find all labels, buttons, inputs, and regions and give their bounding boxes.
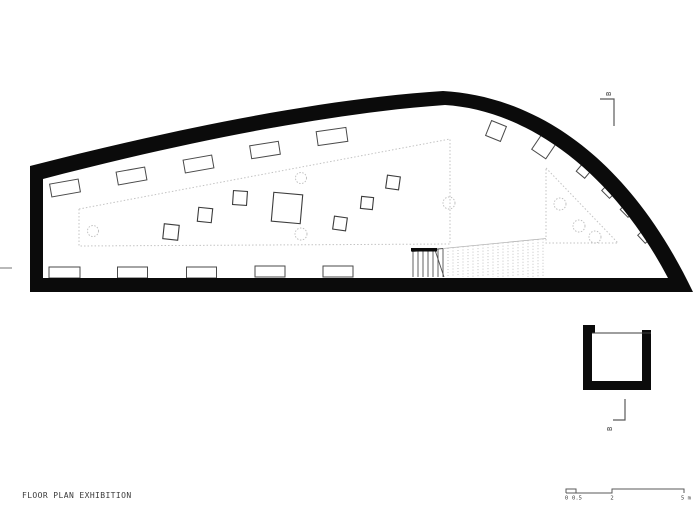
- scale-label-2: 0.5: [572, 496, 582, 502]
- pedestal-7: [386, 175, 401, 190]
- dashed-circle-3: [295, 228, 307, 240]
- floor-plan-sheet: BB00.525 m FLOOR PLAN EXHIBITION: [0, 0, 700, 525]
- display-case-bottom-3: [187, 267, 217, 278]
- exhibition-wall: [30, 91, 693, 292]
- dashed-circle-2: [296, 173, 307, 184]
- display-case-top-3: [183, 155, 214, 173]
- scale-bar: [566, 489, 684, 493]
- display-case-bottom-5: [323, 266, 353, 277]
- display-case-top-5: [316, 127, 348, 145]
- pedestal-4: [271, 192, 302, 223]
- display-case-top-4: [250, 141, 281, 158]
- pedestal-3: [233, 191, 248, 206]
- dashed-circle-1: [88, 226, 99, 237]
- display-case-bottom-1: [49, 267, 80, 278]
- drawing-title: FLOOR PLAN EXHIBITION: [22, 491, 132, 500]
- scale-label-3: 2: [610, 496, 613, 502]
- dashed-circle-7: [589, 231, 601, 243]
- dashed-circle-4: [443, 197, 455, 209]
- shaft-wall-2: [583, 326, 592, 390]
- floor-plan-drawing: BB00.525 m: [0, 0, 700, 525]
- section-marker-line-1: [600, 99, 614, 126]
- stair-handrail: [411, 248, 437, 252]
- scale-label-4: 5 m: [681, 496, 692, 502]
- dashed-circle-6: [573, 220, 585, 232]
- section-marker-label-2: B: [606, 427, 614, 431]
- section-marker-label-1: B: [605, 92, 613, 96]
- pedestal-5: [333, 216, 348, 231]
- display-case-top-1: [50, 179, 81, 197]
- pedestal-6: [360, 196, 373, 209]
- section-marker-line-2: [613, 399, 625, 420]
- stair-edge-upper: [443, 239, 546, 249]
- display-case-bottom-2: [118, 267, 148, 278]
- pedestal-2: [197, 207, 212, 222]
- display-case-top-2: [116, 167, 147, 185]
- display-case-curve-1: [486, 121, 507, 142]
- display-case-bottom-4: [255, 266, 285, 277]
- dashed-circle-5: [554, 198, 566, 210]
- shaft-wall-4: [583, 381, 651, 390]
- scale-label-1: 0: [565, 496, 568, 502]
- pedestal-1: [163, 224, 179, 240]
